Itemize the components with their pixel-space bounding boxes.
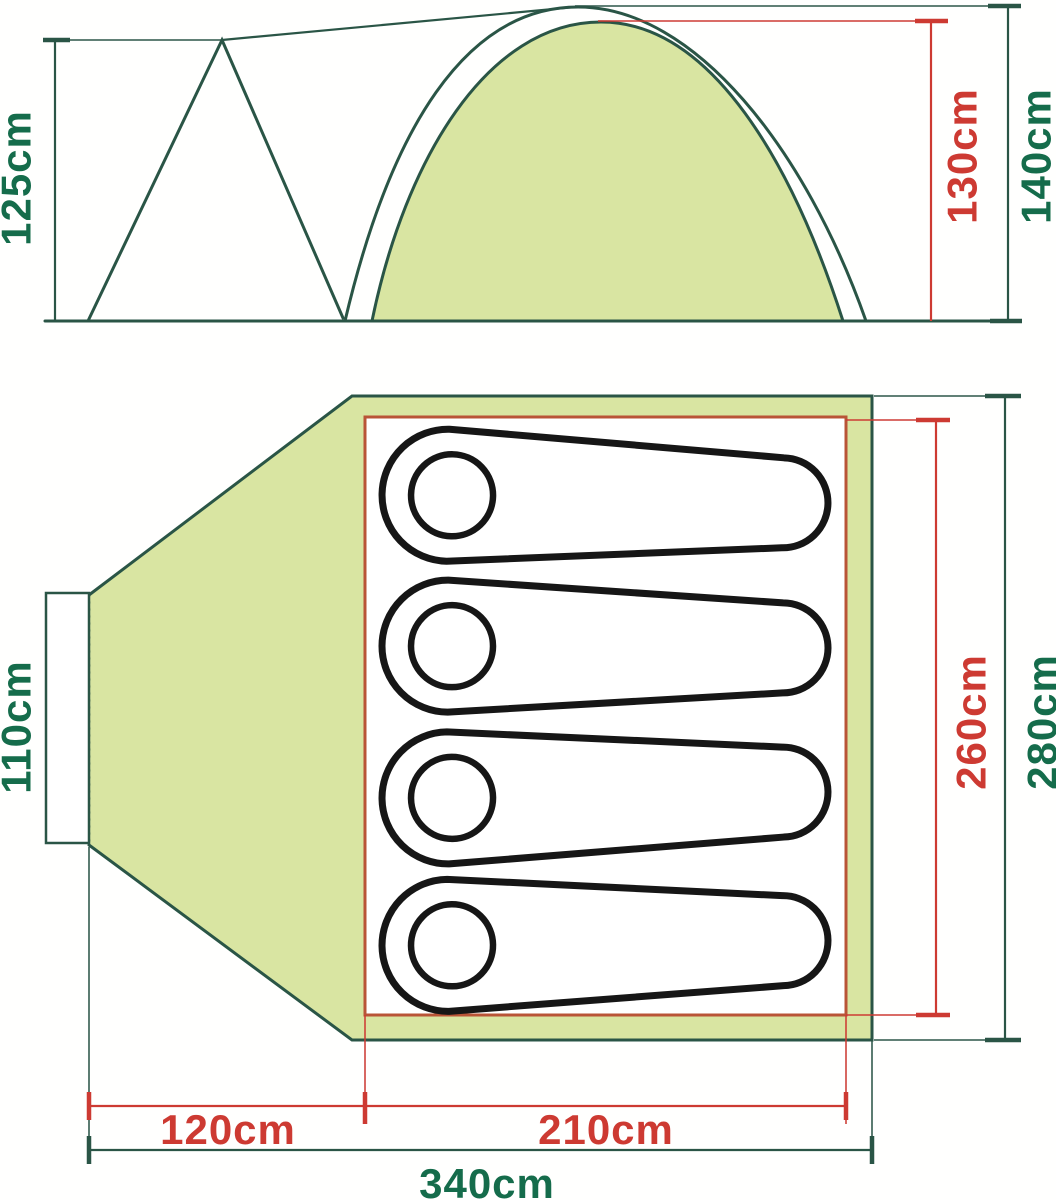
ridge-line (222, 7, 575, 40)
dim-outer-length-label: 280cm (1019, 654, 1056, 790)
dim-porch-height: 125cm (0, 40, 222, 321)
dim-outer-height: 140cm (988, 6, 1056, 321)
dim-inner-height-label: 130cm (939, 88, 986, 224)
dim-porch-height-label: 125cm (0, 110, 40, 246)
dim-total-width-label: 340cm (419, 1160, 555, 1200)
sleeping-bag-2 (382, 580, 829, 714)
tent-dimension-diagram: 125cm 130cm 140cm (0, 0, 1056, 1200)
floor-door (46, 593, 89, 843)
porch-profile (88, 40, 343, 321)
dim-porch-depth-label: 120cm (160, 1106, 296, 1153)
dim-inner-length-label: 260cm (948, 654, 995, 790)
floor-plan: 110cm 260cm 280cm (0, 396, 1056, 1200)
inner-dome-fill (372, 22, 843, 321)
dim-inner-width-label: 210cm (538, 1106, 674, 1153)
side-view: 125cm 130cm 140cm (0, 6, 1056, 321)
dim-outer-height-label: 140cm (1013, 88, 1056, 224)
dim-porch-depth-and-inner-width: 120cm 210cm (89, 1092, 846, 1153)
diagram-svg: 125cm 130cm 140cm (0, 0, 1056, 1200)
dim-door-width-label: 110cm (0, 660, 40, 793)
